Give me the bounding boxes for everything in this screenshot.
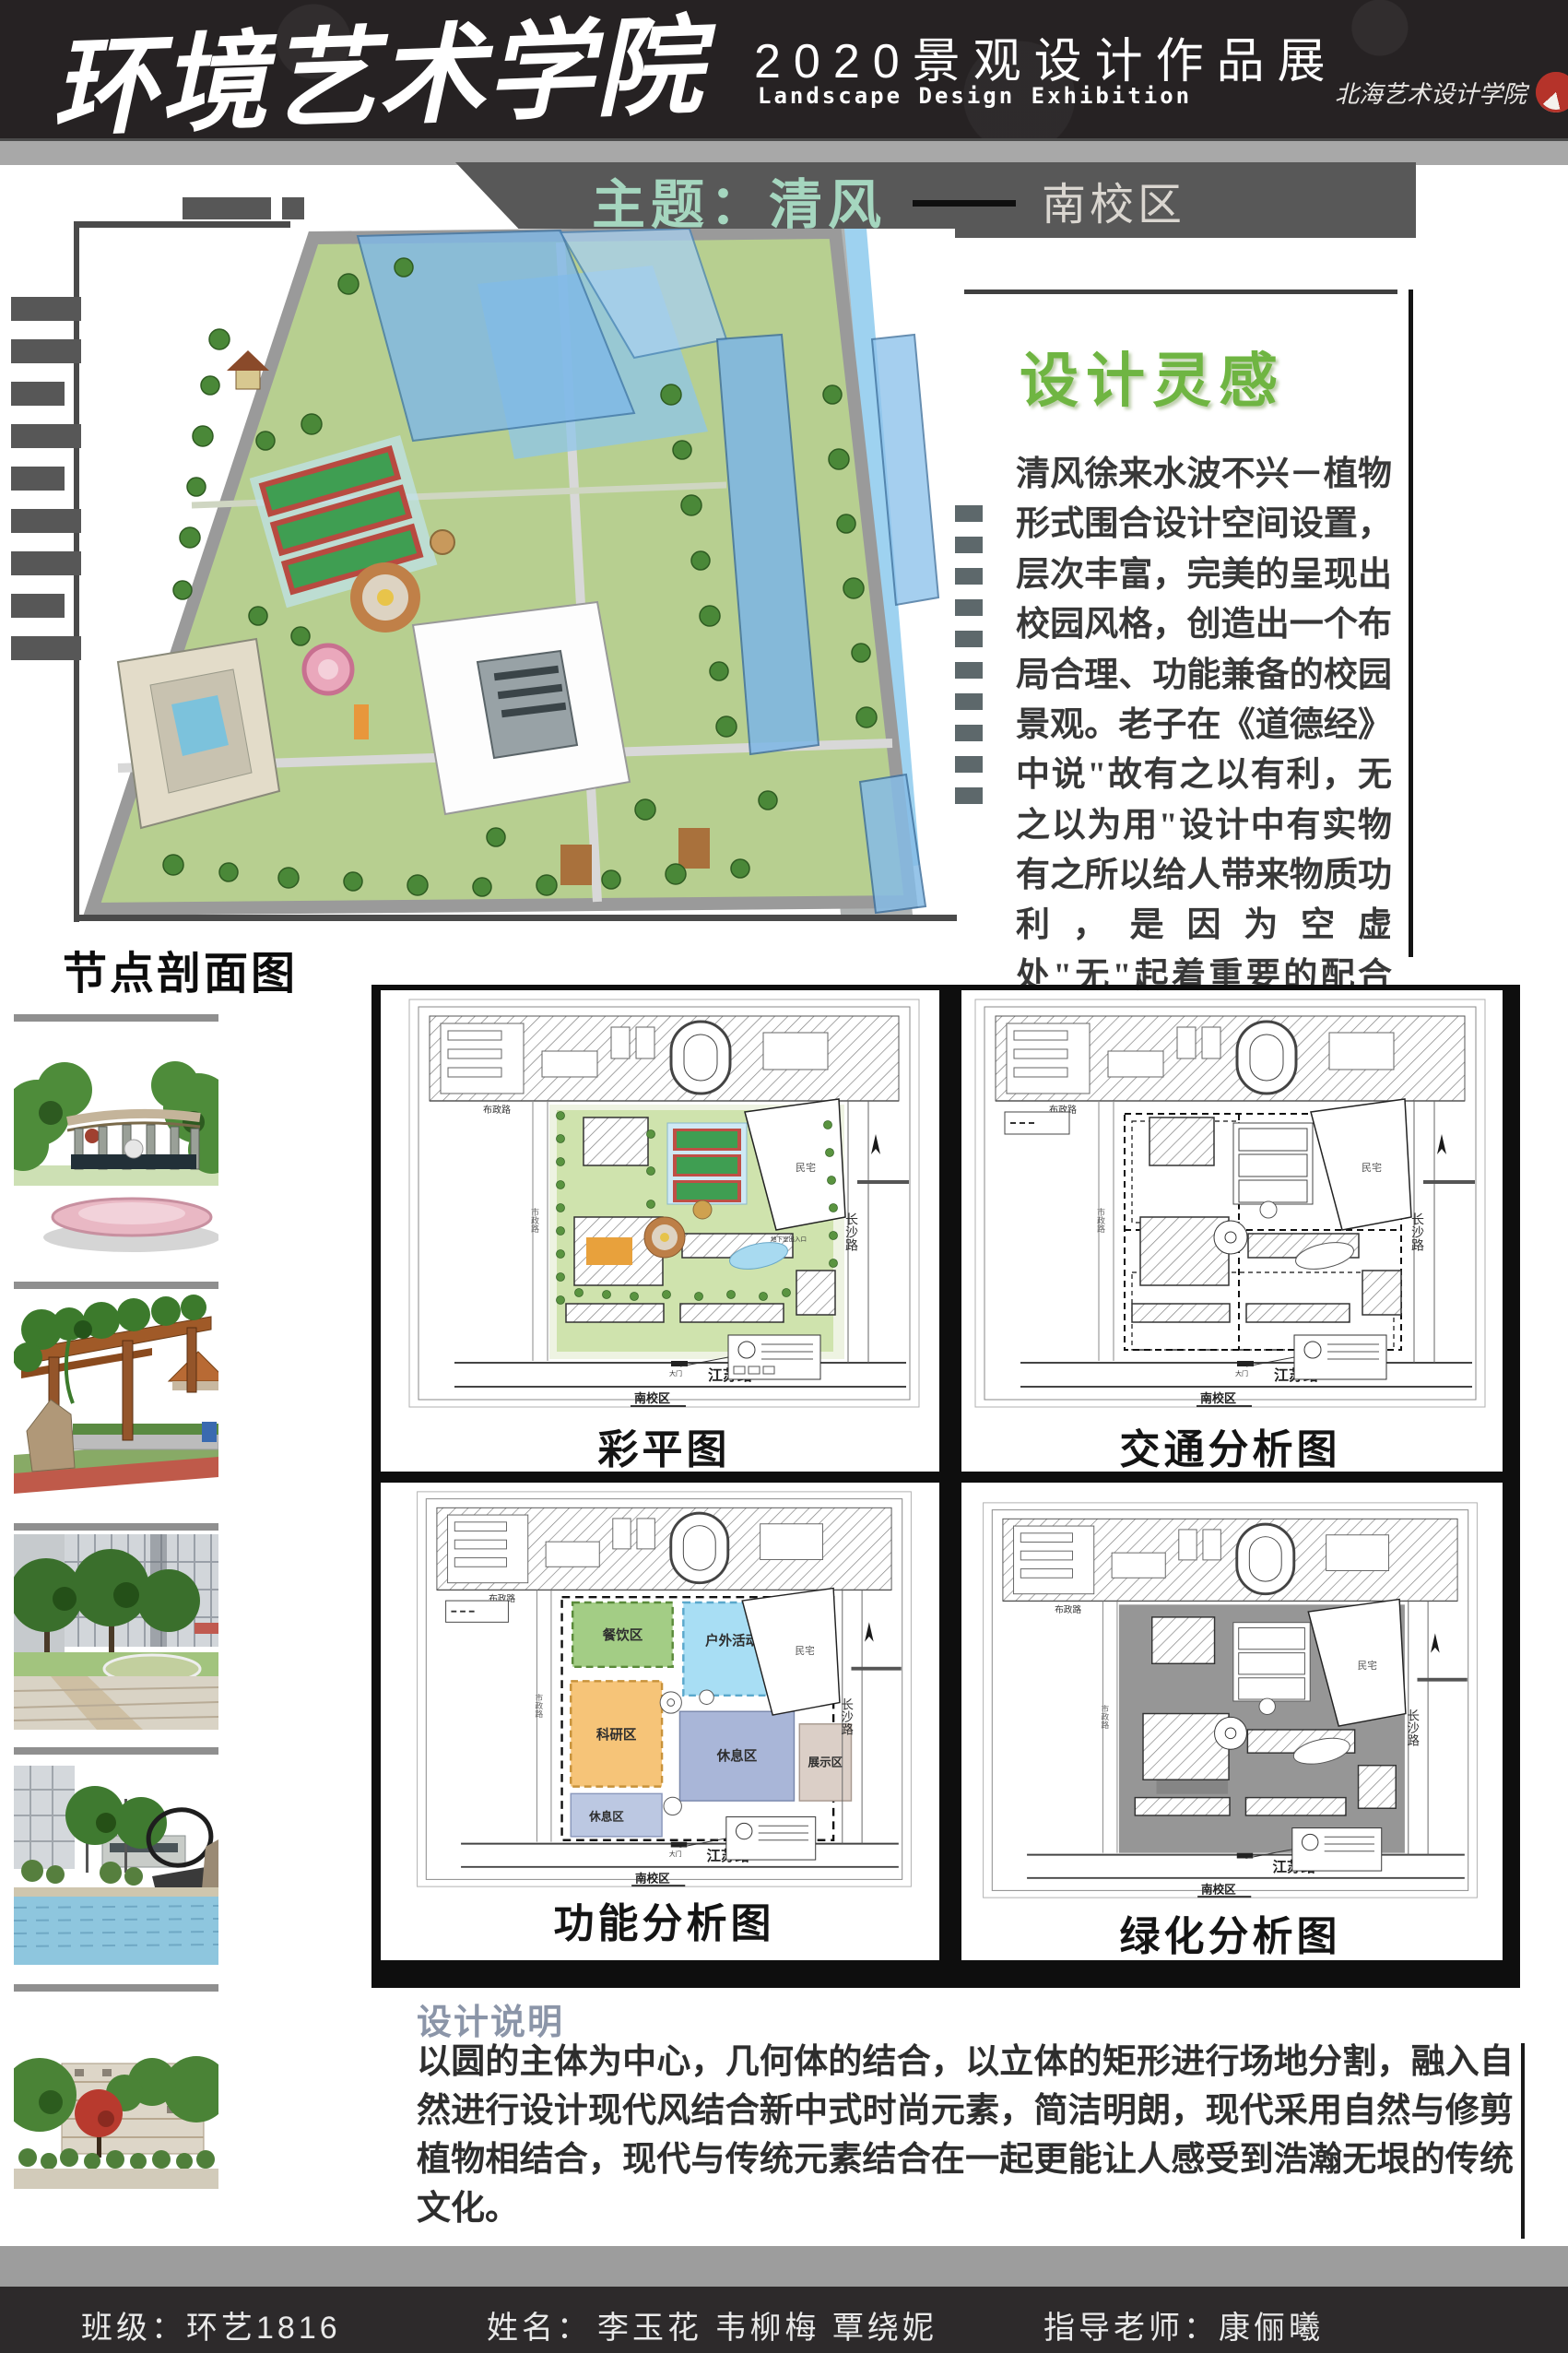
function-analysis-plan: 布政路 市政路 餐饮区 户外活动区 科研区 休息区 展示区 休息区 民宅 江苏路… (404, 1488, 925, 1890)
building-label: 民宅 (795, 1645, 815, 1657)
gate-label: 大门 (669, 1850, 682, 1858)
plan-caption: 南校区 (1200, 1391, 1236, 1405)
exhibition-title-en: Landscape Design Exhibition (758, 83, 1192, 109)
zone-label: 科研区 (596, 1726, 637, 1743)
exhibition-poster: 环境艺术学院 2020景观设计作品展 Landscape Design Exhi… (0, 0, 1568, 2353)
diagram-grid-border-right (1503, 985, 1520, 1988)
plan-caption: 南校区 (635, 1871, 670, 1885)
campus-label: 南校区 (1042, 168, 1185, 232)
theme-banner: 主题：清风 南校区 (455, 162, 1416, 238)
render-frame-top (74, 221, 290, 228)
footer-advisor: 指导老师：康俪曦 (1043, 2302, 1324, 2347)
section-photo-waterfront-ring (14, 1758, 218, 1965)
zone-label: 休息区 (716, 1748, 758, 1765)
gate-label: 大门 (1235, 1369, 1248, 1378)
footer-bar: 班级：环艺1816 姓名： 李玉花 韦柳梅 覃绕妮 指导老师：康俪曦 (0, 2287, 1568, 2353)
photo-separator (14, 1984, 218, 1992)
left-barcode-decoration (11, 297, 83, 679)
node-profile-heading: 节点剖面图 (63, 937, 298, 1001)
inspiration-title: 设计灵感 (1020, 334, 1285, 419)
footer-gray-band (0, 2246, 1568, 2287)
plan-label-caiping: 彩平图 (404, 1416, 925, 1475)
college-logo-text: 北海艺术设计学院 (1335, 76, 1527, 110)
photo-separator (14, 1014, 218, 1022)
road-label: 市政路 (1096, 1207, 1105, 1234)
deco-bar-top-2 (282, 197, 304, 219)
footer-class: 班级：环艺1816 (81, 2302, 341, 2347)
dash-line (913, 200, 1016, 207)
exhibition-title-cn: 2020景观设计作品展 (754, 22, 1338, 91)
render-frame-bottom (74, 915, 957, 921)
footer-name-label: 姓名： (487, 2302, 592, 2347)
road-label: 长沙路 (1410, 1212, 1425, 1251)
zone-label: 休息区 (588, 1809, 624, 1823)
section-photo-building-redtree (14, 2010, 218, 2205)
entrance-label: 地下室出入口 (771, 1235, 807, 1243)
zone-label: 展示区 (808, 1756, 843, 1768)
inspiration-top-rule (964, 290, 1397, 294)
diagram-grid-border-left (371, 985, 381, 1988)
description-right-rule (1521, 2043, 1525, 2239)
diagram-grid-border-bottom (371, 1960, 1520, 1988)
building-label: 民宅 (796, 1161, 816, 1174)
photo-separator (14, 1282, 218, 1289)
design-description-heading: 设计说明 (417, 1993, 564, 2044)
plan-label-jiaotong: 交通分析图 (970, 1416, 1491, 1475)
road-label: 市政路 (530, 1207, 539, 1234)
header-divider-strip (0, 138, 1568, 165)
plan-caption: 南校区 (634, 1391, 670, 1405)
campus-aerial-rendering (81, 229, 955, 915)
building-label: 民宅 (1362, 1161, 1382, 1174)
college-logo: 北海艺术设计学院 (1335, 72, 1568, 112)
road-label: 长沙路 (839, 1698, 854, 1736)
building-label: 民宅 (1358, 1660, 1378, 1672)
road-label: 长沙路 (1405, 1709, 1420, 1747)
inspiration-right-rule (1409, 290, 1413, 957)
header-band: 环境艺术学院 2020景观设计作品展 Landscape Design Exhi… (0, 0, 1568, 138)
gate-label: 大门 (669, 1369, 682, 1378)
photo-separator (14, 1523, 218, 1531)
design-description-body: 以圆的主体为中心，几何体的结合，以立体的矩形进行场地分割，融入自然进行设计现代风… (417, 2038, 1514, 2233)
inspiration-body: 清风徐来水波不兴－植物形式围合设计空间设置，层次丰富，完美的呈现出校园风格，创造… (1016, 450, 1392, 1052)
road-label: 布政路 (483, 1104, 511, 1116)
road-label: 市政路 (1100, 1704, 1109, 1730)
zone-label: 餐饮区 (603, 1627, 643, 1644)
road-label: 长沙路 (844, 1212, 859, 1251)
section-photo-pergola-circle (14, 1025, 218, 1263)
deco-bar-top-1 (183, 197, 271, 219)
plan-label-lvhua: 绿化分析图 (970, 1903, 1491, 1962)
road-label: 布政路 (1055, 1603, 1081, 1615)
theme-title: 主题：清风 (592, 161, 887, 239)
plan-label-gongneng: 功能分析图 (404, 1890, 925, 1949)
color-site-plan: 布政路 市政路 民宅 江苏路 长沙路 地下 (404, 996, 925, 1411)
section-photo-pergola-vine (14, 1293, 218, 1512)
swirl-logo-icon (1536, 72, 1568, 112)
school-calligraphy-title: 环境艺术学院 (48, 0, 705, 157)
greening-analysis-plan: 布政路 市政路 民宅 江苏路 长沙路 南校区 (970, 1499, 1491, 1901)
plan-caption: 南校区 (1201, 1882, 1236, 1896)
traffic-analysis-plan: 布政路 市政路 民宅 江苏路 长沙路 大门 南校区 (970, 996, 1491, 1411)
road-label: 市政路 (534, 1693, 543, 1719)
section-photo-courtyard (14, 1534, 218, 1730)
photo-separator (14, 1747, 218, 1755)
footer-names: 李玉花 韦柳梅 覃绕妮 (597, 2302, 937, 2347)
